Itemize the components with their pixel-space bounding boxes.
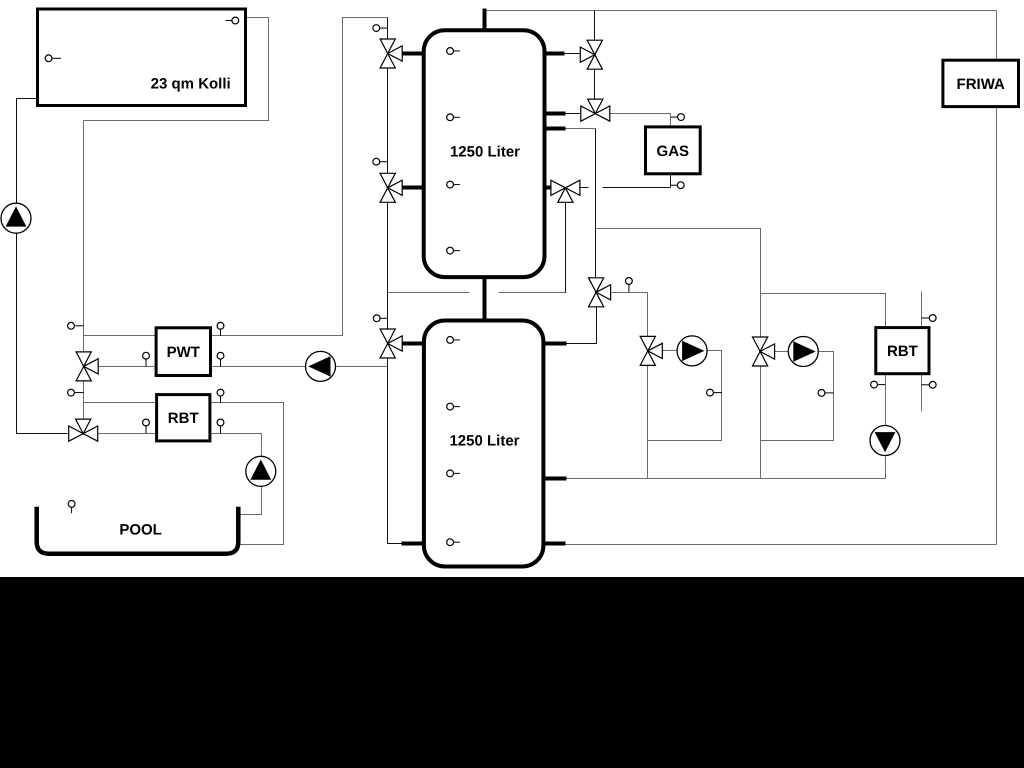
svg-text:RBT: RBT xyxy=(887,343,918,360)
svg-text:1250 Liter: 1250 Liter xyxy=(449,433,519,450)
svg-text:PWT: PWT xyxy=(167,344,200,361)
svg-text:FRIWA: FRIWA xyxy=(957,76,1005,93)
svg-text:POOL: POOL xyxy=(119,522,162,539)
svg-text:GAS: GAS xyxy=(657,143,690,160)
svg-text:1250 Liter: 1250 Liter xyxy=(450,144,520,161)
svg-text:23 qm Kolli: 23 qm Kolli xyxy=(151,76,231,93)
svg-text:RBT: RBT xyxy=(168,410,199,427)
